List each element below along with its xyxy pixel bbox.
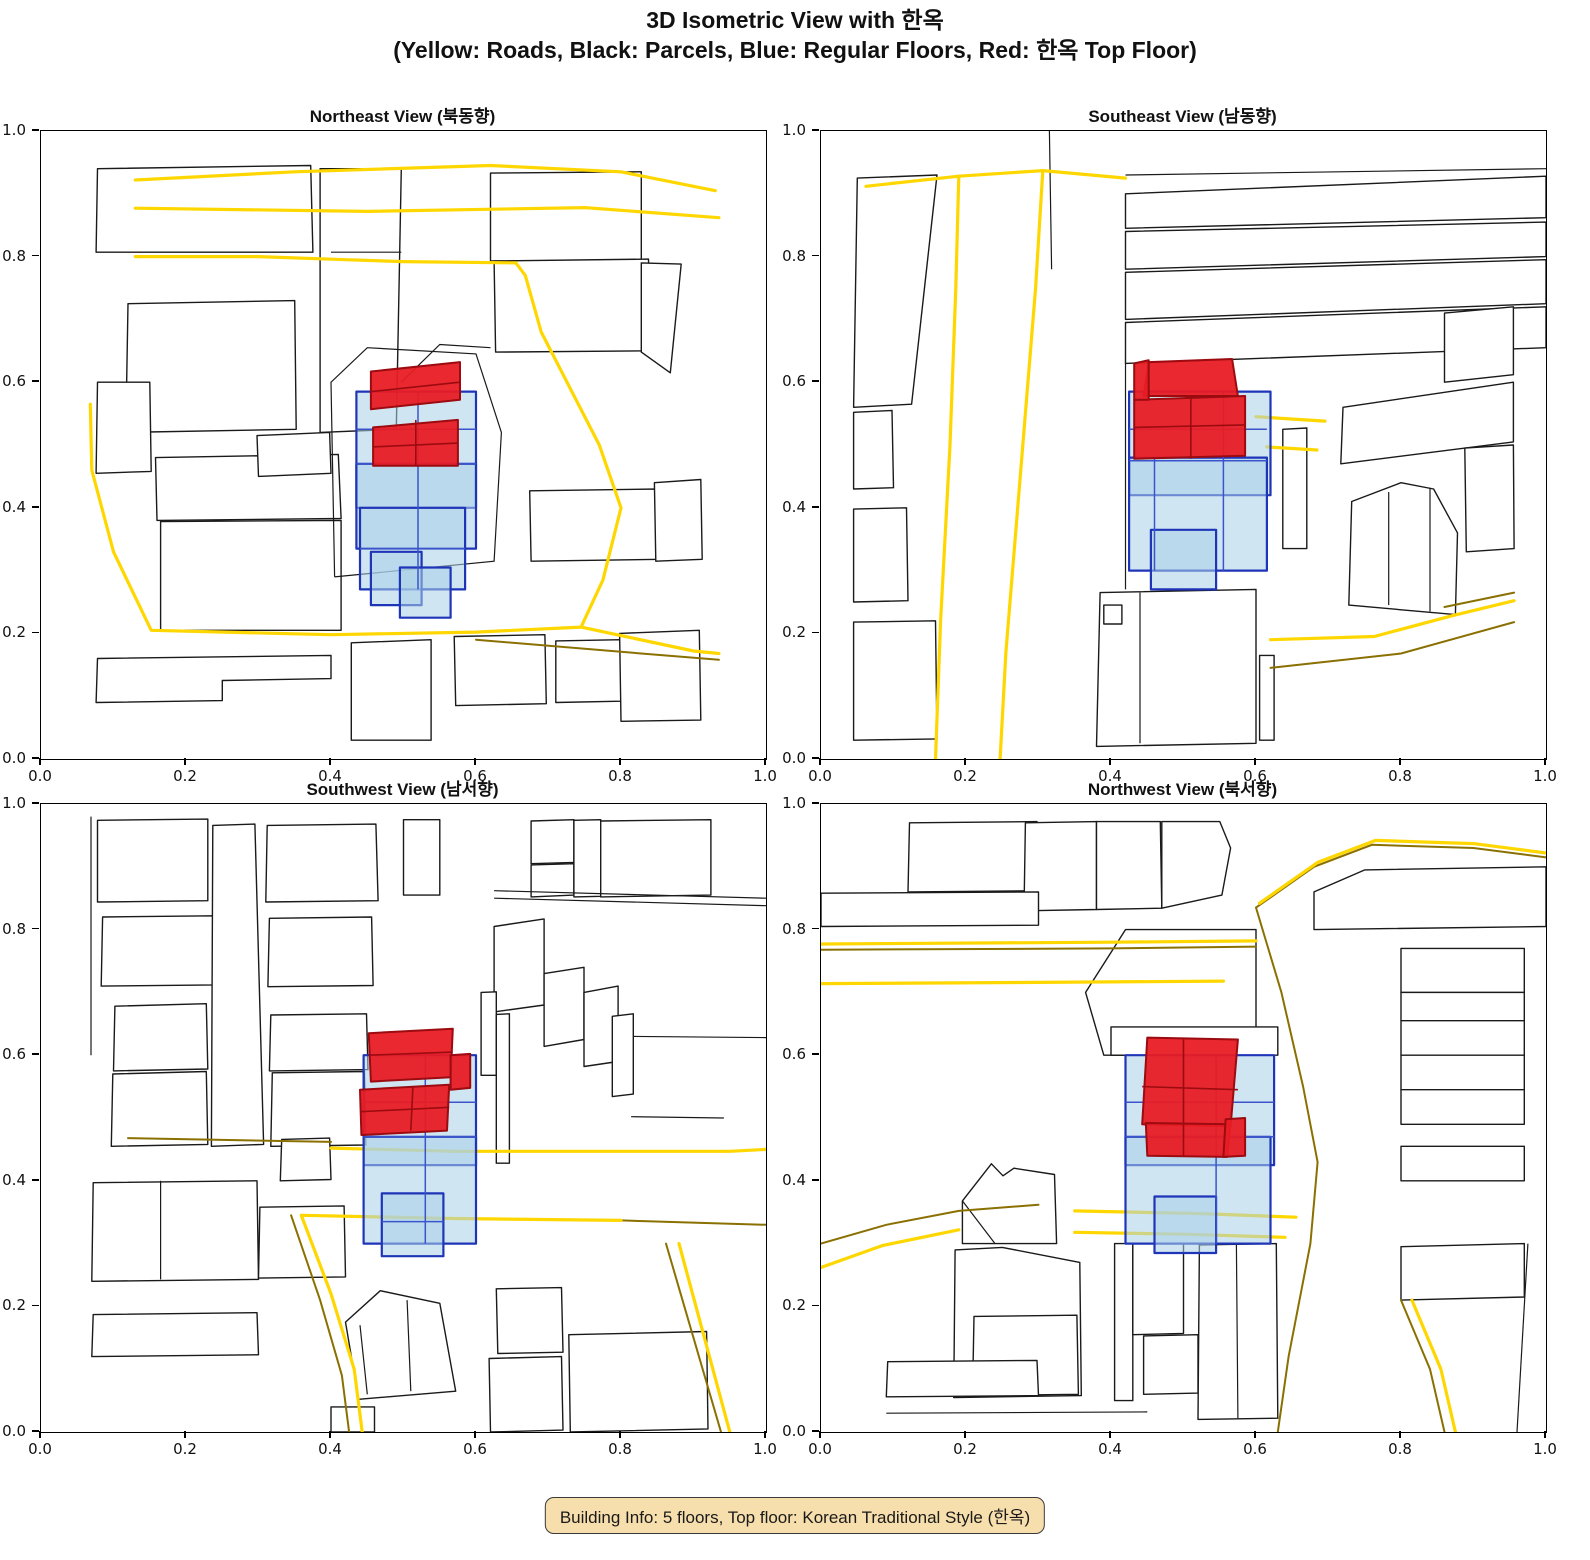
road-dark-line xyxy=(621,1220,766,1224)
parcel-polygon xyxy=(269,1014,368,1071)
y-axis-tick xyxy=(812,1305,819,1307)
y-axis-tick xyxy=(812,632,819,634)
parcel-polygon xyxy=(1144,1335,1198,1395)
x-axis-tick xyxy=(329,1431,331,1438)
parcel-polygon xyxy=(496,1288,563,1354)
parcel-polygon xyxy=(854,175,937,407)
x-axis-tick-label: 0.0 xyxy=(808,1440,832,1458)
y-axis-tick-label: 0.0 xyxy=(2,1422,26,1440)
parcel-polygon xyxy=(1126,176,1547,228)
parcel-polygon xyxy=(351,640,431,741)
y-axis-tick-label: 0.4 xyxy=(782,498,806,516)
subplot-northeast: Northeast View (북동향) 0.00.00.20.20.40.40… xyxy=(40,130,765,758)
parcel-polygon xyxy=(1349,483,1458,615)
parcel-polygon xyxy=(266,824,378,902)
hanok-roof xyxy=(1223,1118,1245,1157)
y-axis-tick-label: 0.8 xyxy=(2,247,26,265)
y-axis-tick-label: 0.8 xyxy=(2,920,26,938)
y-axis-tick-label: 1.0 xyxy=(2,794,26,812)
subplot-southeast: Southeast View (남동향) 0.00.00.20.20.40.40… xyxy=(820,130,1545,758)
y-axis-tick-label: 0.8 xyxy=(782,920,806,938)
y-axis-tick xyxy=(32,757,39,759)
parcel-polygon xyxy=(1283,428,1307,549)
parcel-line xyxy=(633,1036,766,1037)
x-axis-tick-label: 0.0 xyxy=(28,1440,52,1458)
x-axis-tick-label: 0.8 xyxy=(608,1440,632,1458)
parcel-polygon xyxy=(1465,445,1514,552)
parcel-polygon xyxy=(886,1360,1038,1396)
y-axis-tick xyxy=(812,1053,819,1055)
parcel-polygon xyxy=(854,621,937,740)
parcel-polygon xyxy=(96,382,151,473)
y-axis-tick xyxy=(32,380,39,382)
x-axis-tick xyxy=(1399,758,1401,765)
map-canvas-southwest xyxy=(40,803,767,1433)
parcel-polygon xyxy=(92,1313,259,1357)
map-canvas-northwest xyxy=(820,803,1547,1433)
hanok-roof xyxy=(1142,1038,1238,1127)
parcel-polygon xyxy=(257,432,331,476)
x-axis-tick xyxy=(474,758,476,765)
parcel-polygon xyxy=(854,411,894,490)
y-axis-tick-label: 0.2 xyxy=(2,1296,26,1314)
y-axis-tick xyxy=(812,255,819,257)
parcel-polygon xyxy=(1115,1244,1133,1401)
parcel-polygon xyxy=(1445,307,1514,382)
parcel-line xyxy=(886,1412,1147,1413)
parcel-line xyxy=(1049,131,1051,269)
parcel-polygon xyxy=(96,655,331,702)
parcel-polygon xyxy=(612,1014,633,1097)
x-axis-tick-label: 0.4 xyxy=(318,1440,342,1458)
parcel-polygon xyxy=(268,917,373,987)
x-axis-tick-label: 0.4 xyxy=(1098,1440,1122,1458)
hanok-roof xyxy=(451,1054,471,1090)
x-axis-tick-label: 0.2 xyxy=(953,1440,977,1458)
parcel-polygon xyxy=(271,1072,366,1147)
x-axis-tick xyxy=(1254,758,1256,765)
subplot-title-southeast: Southeast View (남동향) xyxy=(820,102,1545,127)
parcel-polygon xyxy=(601,820,711,897)
y-axis-tick-label: 0.4 xyxy=(2,1171,26,1189)
y-axis-tick xyxy=(32,1179,39,1181)
y-axis-tick-label: 1.0 xyxy=(782,121,806,139)
y-axis-tick-label: 0.6 xyxy=(782,372,806,390)
road-dark-line xyxy=(1271,622,1515,668)
parcel-polygon xyxy=(1133,1244,1184,1335)
road-line xyxy=(1267,447,1317,450)
parcel-polygon xyxy=(1104,605,1122,624)
x-axis-tick xyxy=(184,1431,186,1438)
y-axis-tick xyxy=(32,632,39,634)
subplot-northwest: Northwest View (북서향) 0.00.00.20.20.40.40… xyxy=(820,803,1545,1431)
parcel-line xyxy=(494,898,766,906)
hanok-roof xyxy=(1146,1123,1231,1157)
x-axis-tick xyxy=(964,758,966,765)
parcel-polygon xyxy=(496,1014,509,1163)
parcel-polygon xyxy=(92,1181,259,1282)
y-axis-tick-label: 0.0 xyxy=(782,1422,806,1440)
y-axis-tick xyxy=(32,1305,39,1307)
x-axis-tick xyxy=(1544,758,1546,765)
parcel-polygon xyxy=(161,520,342,630)
y-axis-tick-label: 1.0 xyxy=(2,121,26,139)
parcel-polygon xyxy=(530,489,661,561)
y-axis-tick xyxy=(812,802,819,804)
building-floor xyxy=(400,568,451,618)
map-canvas-northeast xyxy=(40,130,767,760)
y-axis-tick xyxy=(32,255,39,257)
parcel-polygon xyxy=(1401,1146,1524,1181)
parcel-polygon xyxy=(494,919,544,1012)
y-axis-tick-label: 0.0 xyxy=(2,749,26,767)
parcel-polygon xyxy=(126,301,296,433)
y-axis-tick-label: 0.8 xyxy=(782,247,806,265)
hanok-roof xyxy=(1134,360,1149,400)
x-axis-tick xyxy=(329,758,331,765)
y-axis-tick xyxy=(812,506,819,508)
x-axis-tick xyxy=(619,758,621,765)
y-axis-tick xyxy=(32,129,39,131)
y-axis-tick-label: 0.6 xyxy=(2,1045,26,1063)
road-line xyxy=(936,176,959,759)
x-axis-tick-label: 0.8 xyxy=(1388,1440,1412,1458)
y-axis-tick xyxy=(32,1053,39,1055)
y-axis-tick xyxy=(812,129,819,131)
y-axis-tick-label: 0.4 xyxy=(782,1171,806,1189)
y-axis-tick-label: 0.2 xyxy=(782,623,806,641)
parcel-polygon xyxy=(654,480,702,562)
parcel-polygon xyxy=(1401,1090,1524,1125)
parcel-polygon xyxy=(1401,948,1524,992)
parcel-polygon xyxy=(1401,1055,1524,1090)
y-axis-tick-label: 0.6 xyxy=(782,1045,806,1063)
y-axis-tick xyxy=(812,928,819,930)
y-axis-tick xyxy=(32,506,39,508)
parcel-polygon xyxy=(574,820,601,897)
parcel-polygon xyxy=(531,820,574,864)
parcel-polygon xyxy=(1314,867,1546,930)
subplot-title-northeast: Northeast View (북동향) xyxy=(40,102,765,127)
x-axis-tick-label: 0.2 xyxy=(173,1440,197,1458)
y-axis-tick xyxy=(32,1430,39,1432)
parcel-polygon xyxy=(1401,1244,1524,1301)
subplot-southwest: Southwest View (남서향) 0.00.00.20.20.40.40… xyxy=(40,803,765,1431)
figure-title-line2: (Yellow: Roads, Black: Parcels, Blue: Re… xyxy=(0,36,1590,66)
parcel-polygon xyxy=(821,892,1039,927)
parcel-polygon xyxy=(331,1407,375,1432)
x-axis-tick xyxy=(1109,1431,1111,1438)
y-axis-tick-label: 0.0 xyxy=(782,749,806,767)
x-axis-tick xyxy=(39,758,41,765)
x-axis-tick xyxy=(764,1431,766,1438)
x-axis-tick-label: 0.6 xyxy=(463,1440,487,1458)
x-axis-tick xyxy=(619,1431,621,1438)
figure-title: 3D Isometric View with 한옥 (Yellow: Roads… xyxy=(0,6,1590,66)
parcel-polygon xyxy=(481,992,496,1076)
parcel-polygon xyxy=(1162,822,1231,909)
figure-title-line1: 3D Isometric View with 한옥 xyxy=(0,6,1590,36)
hanok-roof xyxy=(1144,359,1238,396)
parcel-polygon xyxy=(1401,992,1524,1020)
parcel-polygon xyxy=(1097,822,1162,910)
x-axis-tick-label: 1.0 xyxy=(753,1440,777,1458)
parcel-polygon xyxy=(908,822,1039,892)
y-axis-tick xyxy=(812,757,819,759)
building-floor xyxy=(382,1193,444,1256)
x-axis-tick xyxy=(819,1431,821,1438)
parcel-polygon xyxy=(569,1332,708,1433)
x-axis-tick xyxy=(1109,758,1111,765)
parcel-polygon xyxy=(489,1357,563,1432)
parcel-polygon xyxy=(114,1004,208,1071)
parcel-polygon xyxy=(962,1164,1056,1244)
y-axis-tick-label: 0.2 xyxy=(782,1296,806,1314)
parcel-polygon xyxy=(1401,1021,1524,1055)
road-line xyxy=(1412,1300,1456,1432)
parcel-polygon xyxy=(211,824,263,1146)
x-axis-tick xyxy=(819,758,821,765)
x-axis-tick xyxy=(184,758,186,765)
road-line xyxy=(821,1230,959,1268)
parcel-polygon xyxy=(280,1138,331,1181)
parcel-polygon xyxy=(641,263,681,373)
building-floor xyxy=(1151,530,1216,590)
parcel-polygon xyxy=(544,967,584,1046)
parcel-polygon xyxy=(101,916,214,986)
x-axis-tick xyxy=(764,758,766,765)
parcel-polygon xyxy=(404,820,440,895)
x-axis-tick-label: 1.0 xyxy=(1533,1440,1557,1458)
hanok-roof xyxy=(371,362,460,409)
building-info-caption: Building Info: 5 floors, Top floor: Kore… xyxy=(545,1497,1045,1534)
parcel-polygon xyxy=(98,819,208,902)
parcel-polygon xyxy=(494,259,651,352)
parcel-polygon xyxy=(111,1072,208,1147)
y-axis-tick xyxy=(32,928,39,930)
subplot-title-northwest: Northwest View (북서향) xyxy=(820,775,1545,800)
y-axis-tick xyxy=(812,380,819,382)
x-axis-tick xyxy=(1254,1431,1256,1438)
y-axis-tick-label: 1.0 xyxy=(782,794,806,812)
x-axis-tick xyxy=(39,1431,41,1438)
y-axis-tick-label: 0.6 xyxy=(2,372,26,390)
building-floor xyxy=(1155,1197,1217,1254)
parcel-line xyxy=(1126,169,1547,175)
map-canvas-southeast xyxy=(820,130,1547,760)
subplot-title-southwest: Southwest View (남서향) xyxy=(40,775,765,800)
road-line xyxy=(1000,171,1043,759)
parcel-polygon xyxy=(854,508,908,602)
x-axis-tick xyxy=(1544,1431,1546,1438)
y-axis-tick xyxy=(812,1430,819,1432)
x-axis-tick-label: 0.6 xyxy=(1243,1440,1267,1458)
y-axis-tick-label: 0.4 xyxy=(2,498,26,516)
y-axis-tick-label: 0.2 xyxy=(2,623,26,641)
parcel-polygon xyxy=(491,172,642,261)
y-axis-tick xyxy=(32,802,39,804)
x-axis-tick xyxy=(474,1431,476,1438)
x-axis-tick xyxy=(1399,1431,1401,1438)
y-axis-tick xyxy=(812,1179,819,1181)
x-axis-tick xyxy=(964,1431,966,1438)
parcel-line xyxy=(631,1117,724,1118)
